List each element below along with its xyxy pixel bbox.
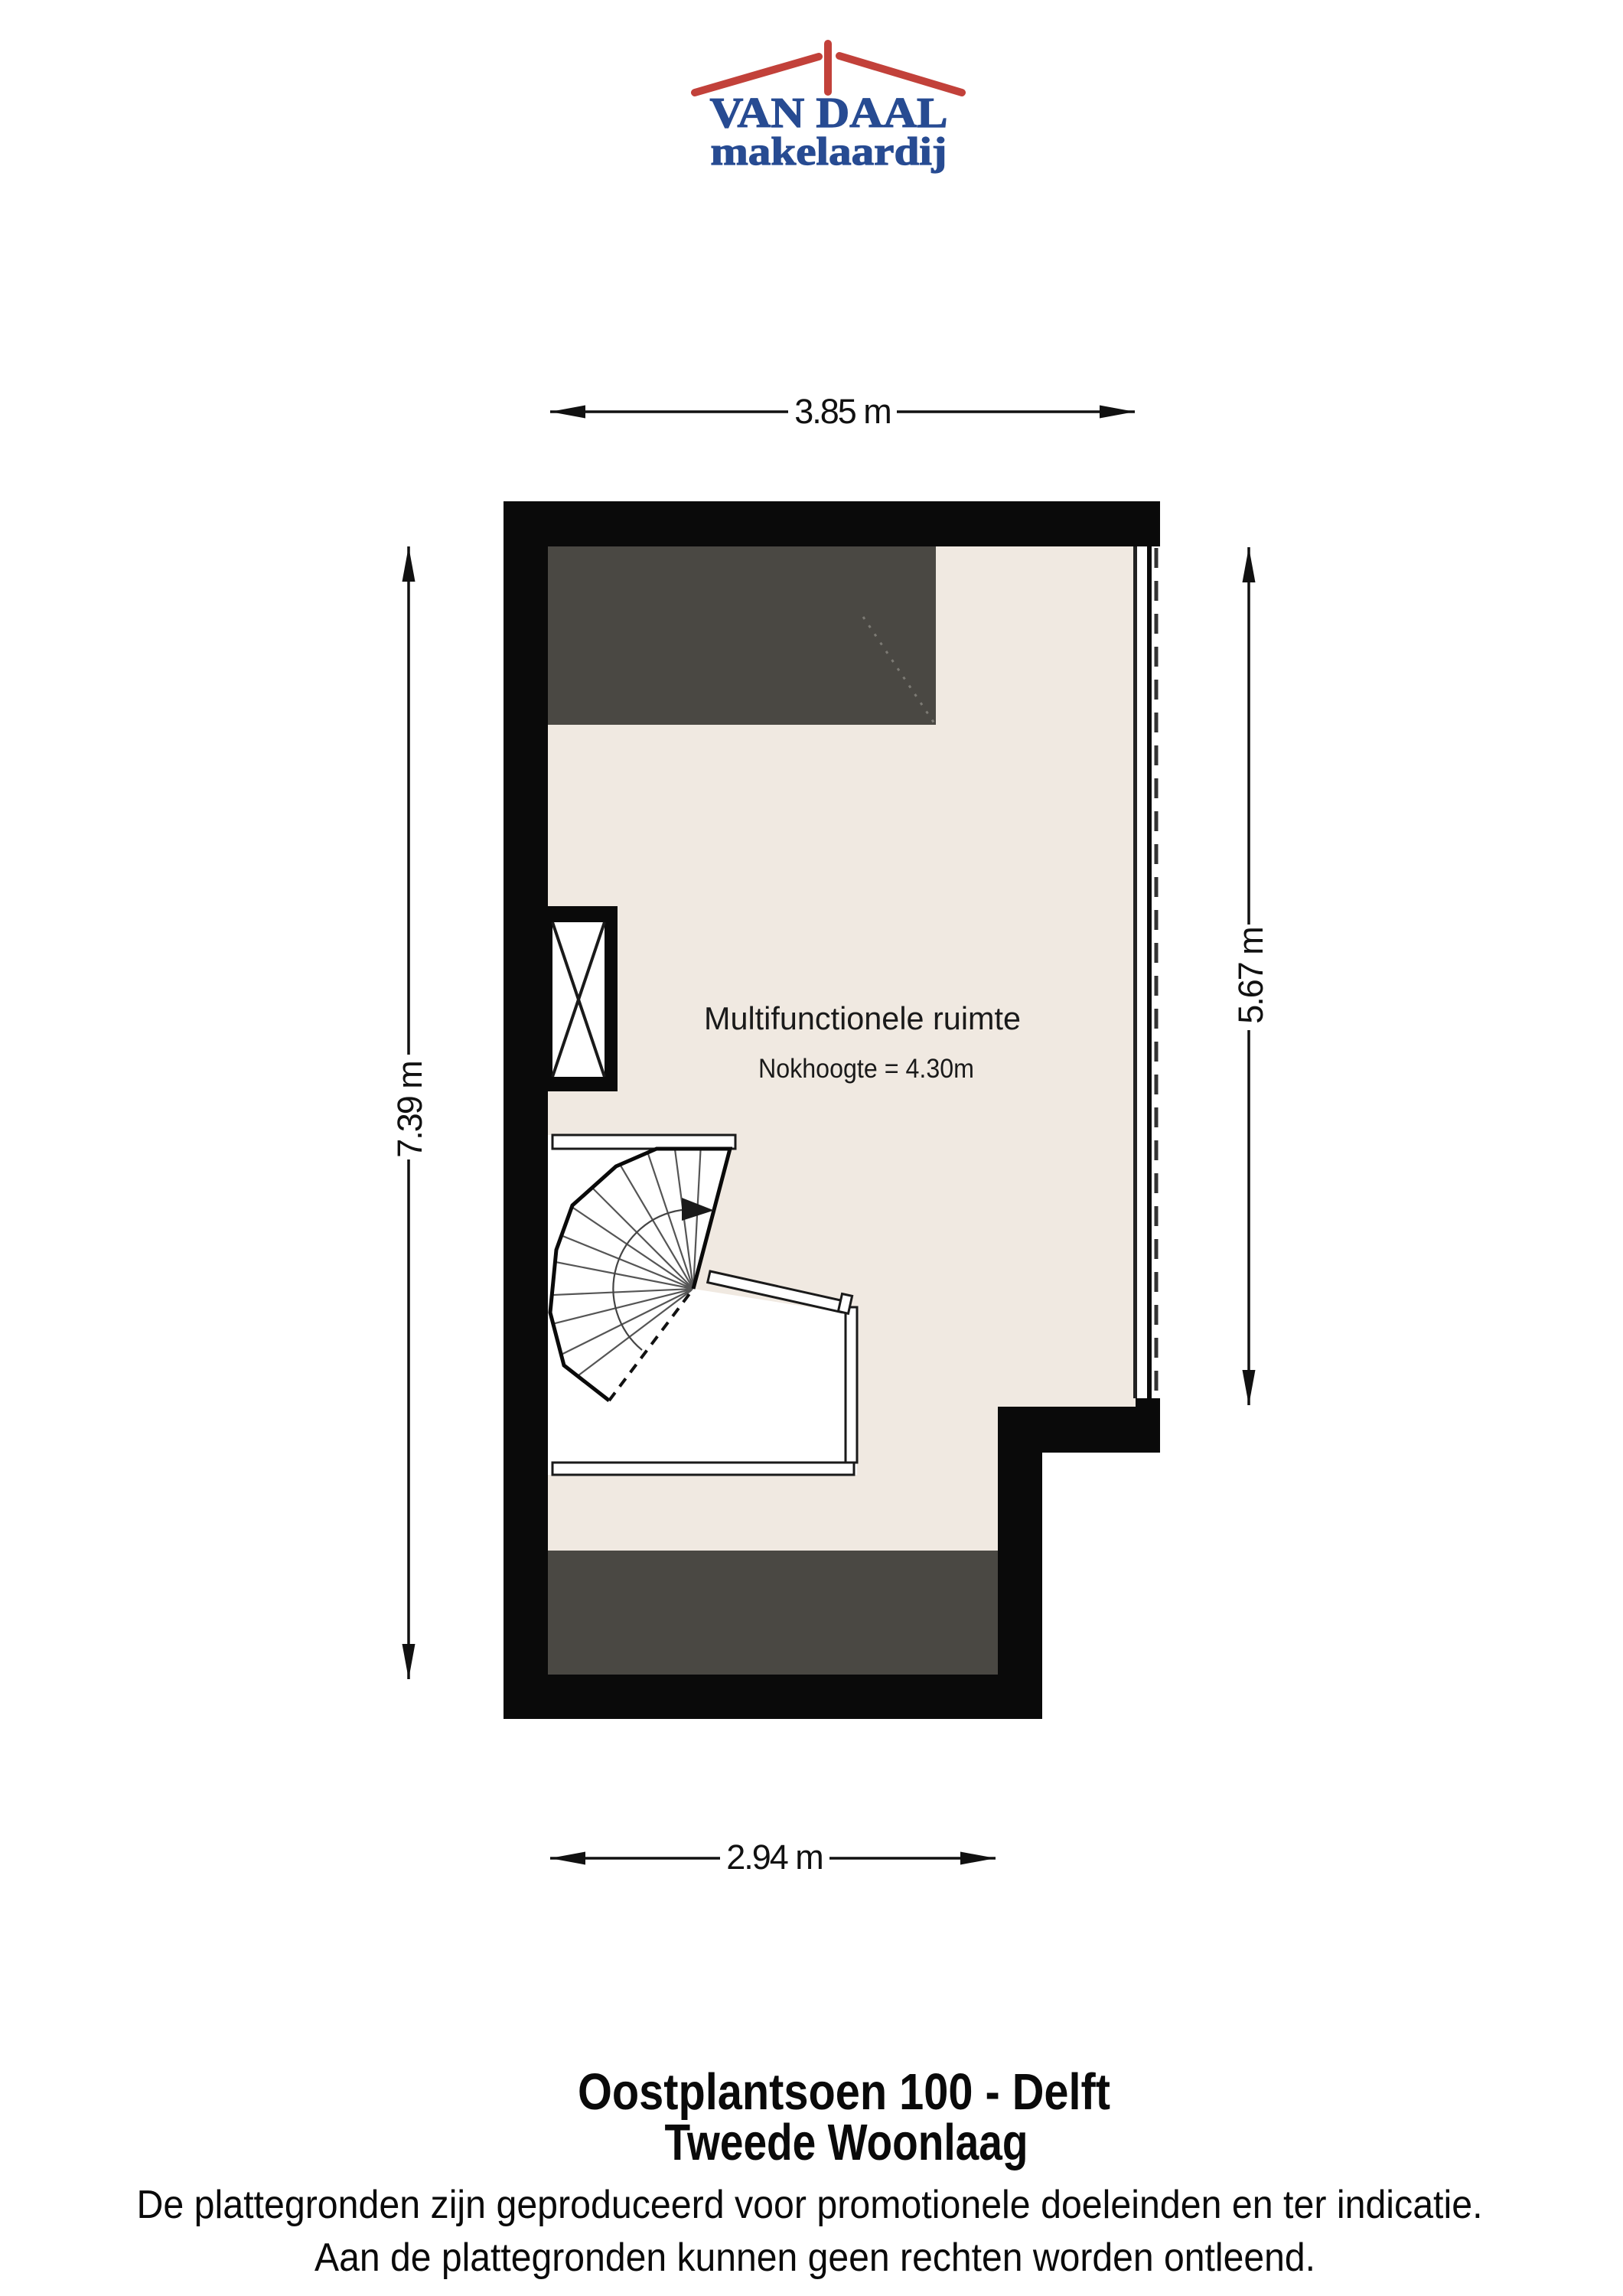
- svg-text:Tweede Woonlaag: Tweede Woonlaag: [665, 2114, 1028, 2171]
- svg-text:De plattegronden zijn geproduc: De plattegronden zijn geproduceerd voor …: [137, 2183, 1483, 2227]
- svg-text:2.94 m: 2.94 m: [726, 1838, 823, 1877]
- svg-text:Oostplantsoen 100 - Delft: Oostplantsoen 100 - Delft: [578, 2063, 1110, 2121]
- svg-text:makelaardij: makelaardij: [711, 130, 947, 174]
- svg-text:5.67 m: 5.67 m: [1231, 928, 1270, 1024]
- svg-text:Multifunctionele ruimte: Multifunctionele ruimte: [704, 1000, 1021, 1036]
- svg-text:Aan de plattegronden kunnen ge: Aan de plattegronden kunnen geen rechten…: [314, 2236, 1315, 2280]
- svg-text:7.39 m: 7.39 m: [390, 1062, 429, 1158]
- svg-text:3.85 m: 3.85 m: [794, 392, 891, 431]
- svg-text:Nokhoogte = 4.30m: Nokhoogte = 4.30m: [758, 1054, 974, 1084]
